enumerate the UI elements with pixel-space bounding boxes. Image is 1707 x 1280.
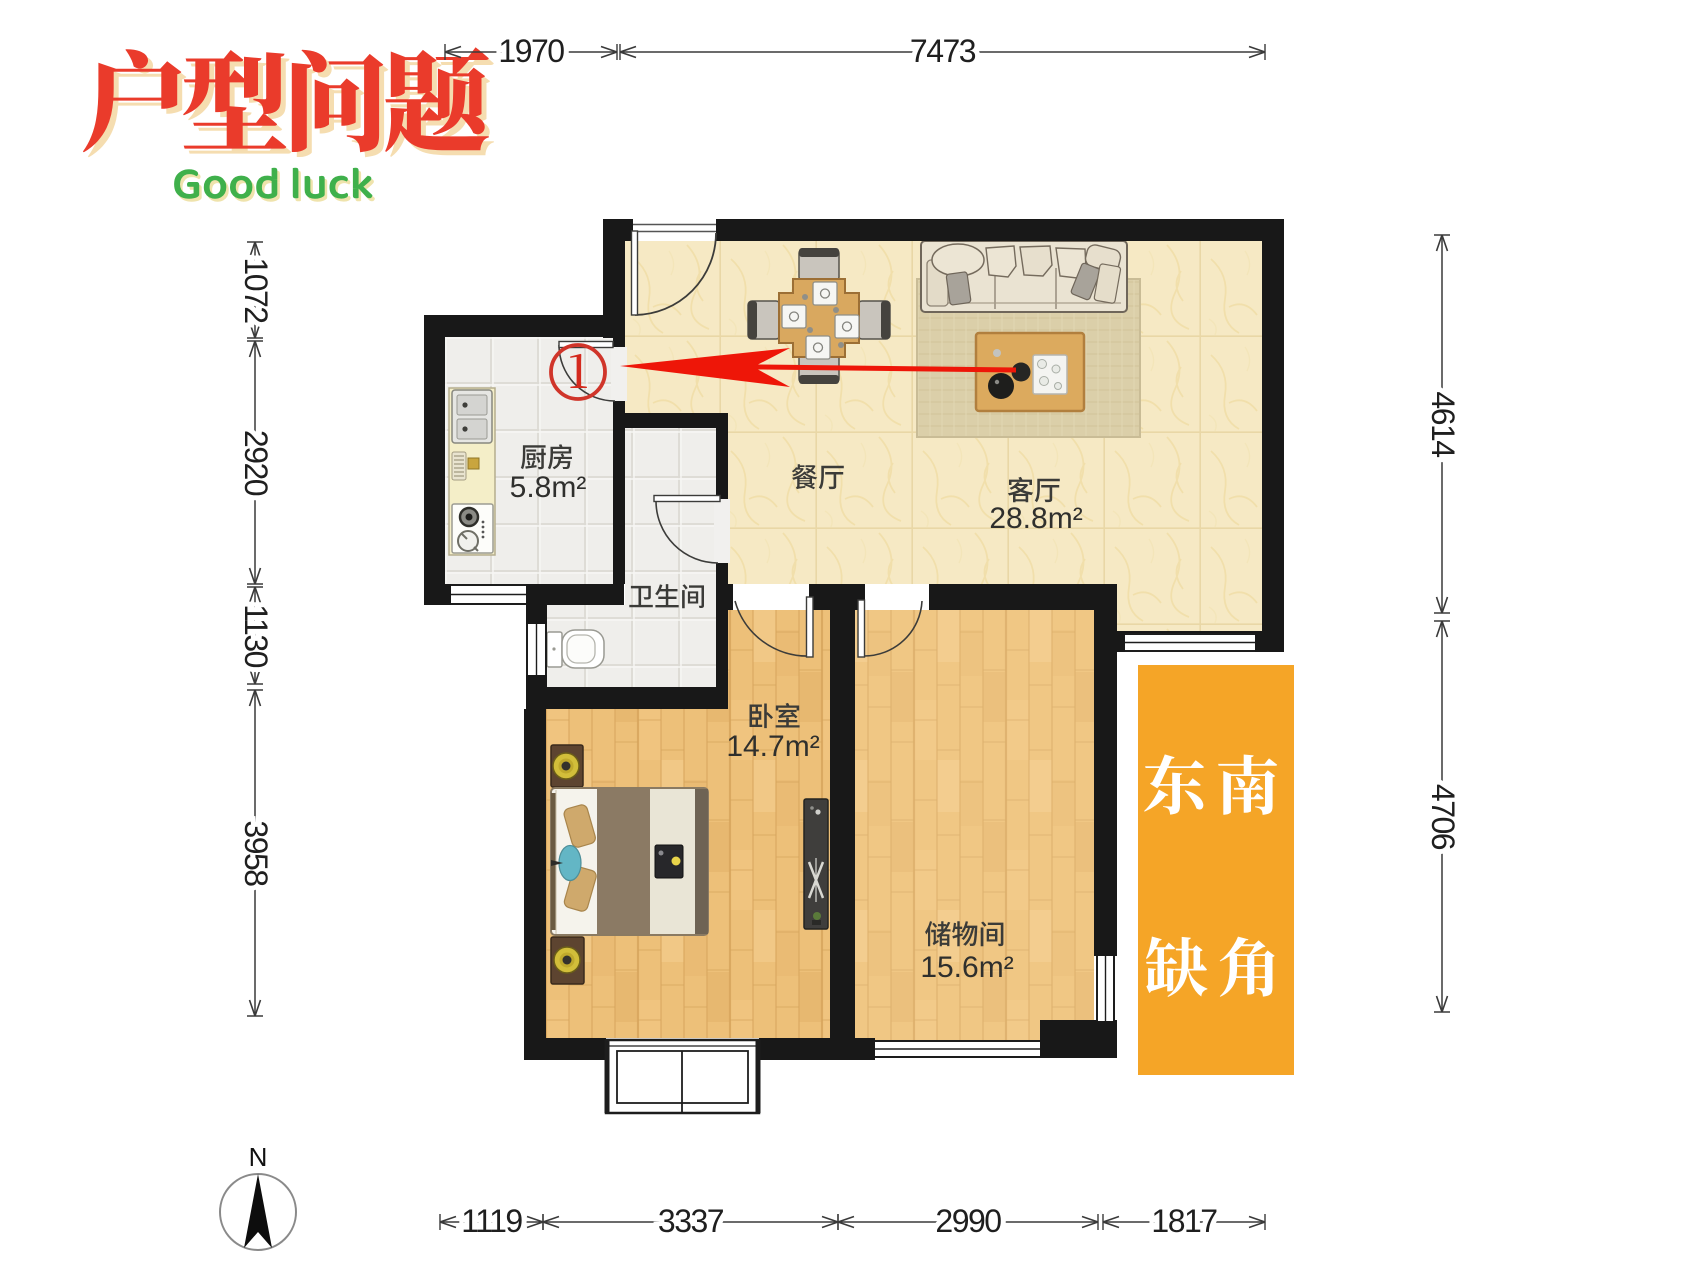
- svg-text:4614: 4614: [1425, 391, 1461, 457]
- svg-text:4706: 4706: [1425, 784, 1461, 850]
- svg-text:2990: 2990: [935, 1203, 1001, 1239]
- svg-text:1817: 1817: [1151, 1203, 1217, 1239]
- svg-text:3958: 3958: [238, 820, 274, 886]
- svg-text:N: N: [249, 1142, 268, 1172]
- svg-text:1970: 1970: [498, 33, 564, 69]
- svg-text:7473: 7473: [910, 33, 976, 69]
- svg-text:5.8m²: 5.8m²: [510, 471, 587, 504]
- svg-text:15.6m²: 15.6m²: [920, 951, 1013, 984]
- svg-text:14.7m²: 14.7m²: [726, 730, 819, 763]
- svg-text:1072: 1072: [238, 257, 274, 323]
- svg-text:1119: 1119: [461, 1203, 522, 1239]
- svg-text:2920: 2920: [238, 430, 274, 496]
- svg-text:3337: 3337: [658, 1203, 724, 1239]
- svg-text:28.8m²: 28.8m²: [989, 502, 1082, 535]
- svg-text:1130: 1130: [238, 604, 274, 668]
